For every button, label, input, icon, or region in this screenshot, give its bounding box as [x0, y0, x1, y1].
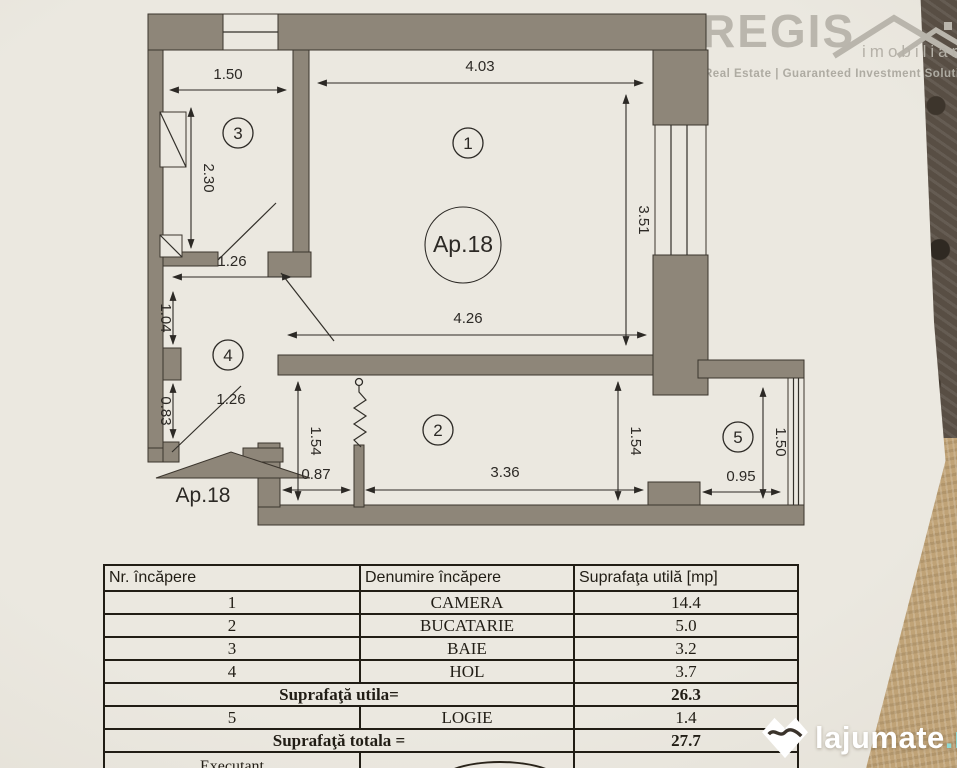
dim-camera-height: 3.51	[626, 95, 652, 345]
window-camera	[655, 125, 706, 255]
cell-area: 3.7	[574, 660, 798, 683]
dim-camera-width-top: 4.03	[318, 58, 643, 83]
svg-text:Ap.18: Ap.18	[433, 231, 493, 257]
table-header-row: Nr. încăpere Denumire încăpere Suprafaţa…	[104, 565, 798, 591]
dim-entrance-door: 1.26	[216, 391, 245, 408]
room-label-baie: 3	[223, 118, 253, 148]
table-row: 1 CAMERA 14.4	[104, 591, 798, 614]
sink	[160, 235, 182, 257]
dim-bucatarie-height-right: 1.54	[618, 382, 644, 500]
column-header-denumire: Denumire încăpere	[360, 565, 574, 591]
svg-text:1.50: 1.50	[213, 66, 242, 83]
svg-text:3: 3	[233, 124, 242, 143]
svg-text:2: 2	[433, 421, 442, 440]
dim-logie-width: 0.95	[703, 468, 780, 492]
room-label-hol: 4	[213, 340, 243, 370]
svg-text:4: 4	[223, 346, 232, 365]
entrance-label: Ap.18	[176, 484, 231, 507]
subtotal-row: Suprafaţă utila= 26.3	[104, 683, 798, 706]
round-stamp: NISTE	[435, 761, 565, 768]
areas-table: Nr. încăpere Denumire încăpere Suprafaţa…	[103, 564, 799, 768]
svg-text:1.26: 1.26	[217, 253, 246, 270]
svg-text:3.36: 3.36	[490, 464, 519, 481]
svg-text:1.54: 1.54	[627, 426, 644, 455]
door-swing-baie	[218, 203, 276, 260]
svg-text:0.95: 0.95	[726, 468, 755, 485]
svg-text:1: 1	[463, 134, 472, 153]
svg-text:2.30: 2.30	[200, 163, 217, 192]
dim-baie-height: 2.30	[191, 108, 217, 248]
dim-camera-width-bottom: 4.26	[288, 310, 646, 335]
flue-symbol	[354, 379, 366, 448]
svg-text:3.51: 3.51	[635, 205, 652, 234]
dim-logie-height: 1.50	[763, 388, 789, 498]
photo-of-floor-plan: REGIS imobiliare Real Estate | Guarantee…	[0, 0, 957, 768]
lajumate-logo-icon	[760, 716, 810, 760]
svg-text:0.87: 0.87	[301, 466, 330, 483]
room-label-logie: 5	[723, 422, 753, 452]
table-row: 5 LOGIE 1.4	[104, 706, 798, 729]
executant-label: Executant	[105, 758, 359, 768]
table-row: 3 BAIE 3.2	[104, 637, 798, 660]
cell-name: LOGIE	[360, 706, 574, 729]
dim-bucatarie-width: 3.36	[366, 464, 643, 490]
table-row: 2 BUCATARIE 5.0	[104, 614, 798, 637]
cell-area: 5.0	[574, 614, 798, 637]
cell-nr: 1	[104, 591, 360, 614]
svg-text:0.83: 0.83	[157, 396, 174, 425]
cell-name: HOL	[360, 660, 574, 683]
svg-text:1.50: 1.50	[772, 427, 789, 456]
total-label: Suprafaţă totala =	[104, 729, 574, 752]
svg-text:1.04: 1.04	[157, 303, 174, 332]
subtotal-value: 26.3	[574, 683, 798, 706]
table-row: 4 HOL 3.7	[104, 660, 798, 683]
dim-baie-width: 1.50	[170, 66, 286, 90]
regis-logo-subtext: imobiliare	[862, 42, 957, 62]
cell-nr: 3	[104, 637, 360, 660]
cell-nr: 4	[104, 660, 360, 683]
cell-area: 3.2	[574, 637, 798, 660]
window-logie	[788, 378, 804, 505]
svg-text:4.03: 4.03	[465, 58, 494, 75]
svg-text:1.54: 1.54	[307, 426, 324, 455]
cell-nr: 2	[104, 614, 360, 637]
floor-plan: Ap.18 3 1 4 2 5 Ap.18 1.50	[128, 0, 808, 545]
apartment-label: Ap.18	[425, 207, 501, 283]
cell-nr: 5	[104, 706, 360, 729]
column-header-nr: Nr. încăpere	[104, 565, 360, 591]
room-label-camera: 1	[453, 128, 483, 158]
bathtub	[160, 112, 186, 167]
cell-name: CAMERA	[360, 591, 574, 614]
svg-text:4.26: 4.26	[453, 310, 482, 327]
lajumate-tld: .ro	[945, 720, 957, 755]
column-header-suprafata: Suprafaţa utilă [mp]	[574, 565, 798, 591]
lajumate-text: lajumate	[815, 720, 945, 755]
executant-row: Executant NISTE	[104, 752, 798, 768]
lajumate-watermark: lajumate.ro	[760, 716, 957, 760]
room-label-bucatarie: 2	[423, 415, 453, 445]
total-row: Suprafaţă totala = 27.7	[104, 729, 798, 752]
svg-text:1.26: 1.26	[216, 391, 245, 408]
door-swing-camera	[281, 273, 334, 341]
subtotal-label: Suprafaţă utila=	[104, 683, 574, 706]
cell-area: 14.4	[574, 591, 798, 614]
cell-name: BUCATARIE	[360, 614, 574, 637]
window-baie	[223, 14, 278, 50]
cell-name: BAIE	[360, 637, 574, 660]
svg-text:5: 5	[733, 428, 742, 447]
